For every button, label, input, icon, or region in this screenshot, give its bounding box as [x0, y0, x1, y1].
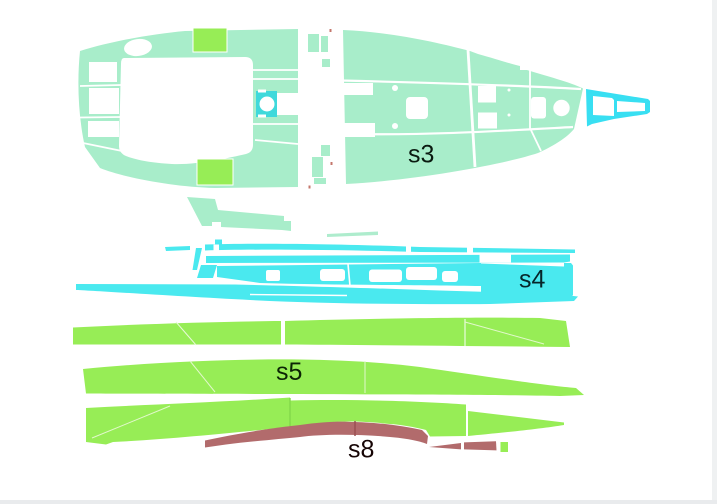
svg-text:s8: s8 [348, 436, 374, 464]
svg-text:s5: s5 [276, 358, 302, 386]
svg-text:s4: s4 [519, 266, 546, 294]
svg-text:s3: s3 [408, 141, 434, 169]
